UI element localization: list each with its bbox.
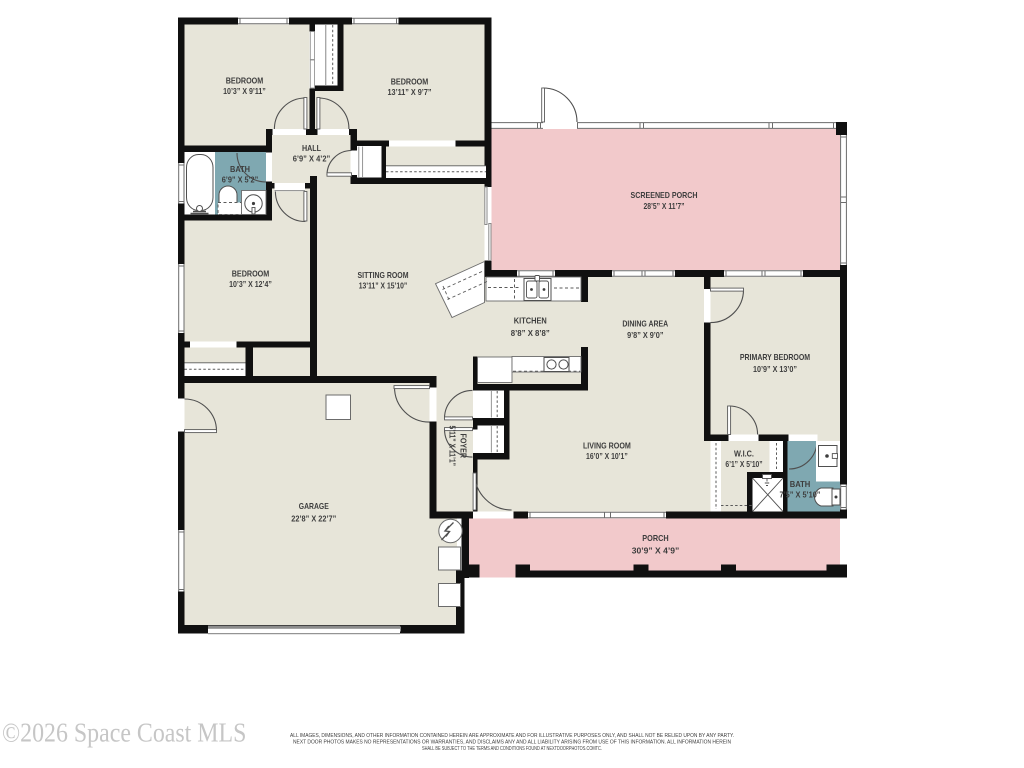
svg-text:BEDROOM: BEDROOM: [226, 75, 264, 85]
svg-text:SHALL BE SUBJECT TO THE TERMS: SHALL BE SUBJECT TO THE TERMS AND CONDIT…: [422, 746, 602, 752]
svg-text:7’5” X 5’10”: 7’5” X 5’10”: [780, 490, 821, 500]
svg-text:28’5” X 11’7”: 28’5” X 11’7”: [644, 201, 685, 211]
svg-text:HALL: HALL: [302, 143, 321, 153]
svg-text:22’8” X 22’7”: 22’8” X 22’7”: [291, 514, 336, 524]
svg-text:8’8” X 8’8”: 8’8” X 8’8”: [511, 328, 550, 338]
svg-text:16’0” X 10’1”: 16’0” X 10’1”: [586, 451, 628, 461]
svg-text:13’11” X 15’10”: 13’11” X 15’10”: [359, 280, 408, 290]
svg-text:6’1” X 5’10”: 6’1” X 5’10”: [725, 459, 762, 469]
svg-text:10’3” X 12’4”: 10’3” X 12’4”: [229, 279, 272, 289]
svg-text:GARAGE: GARAGE: [299, 501, 329, 511]
svg-text:10’3” X 9’11”: 10’3” X 9’11”: [223, 86, 266, 96]
svg-text:BATH: BATH: [790, 479, 811, 489]
svg-text:FOYER: FOYER: [459, 434, 469, 459]
svg-text:LIVING ROOM: LIVING ROOM: [583, 441, 631, 451]
svg-text:BEDROOM: BEDROOM: [232, 269, 270, 279]
svg-text:13’11” X 9’7”: 13’11” X 9’7”: [388, 87, 432, 97]
svg-text:BATH: BATH: [230, 164, 250, 174]
svg-text:30’9” X 4’9”: 30’9” X 4’9”: [632, 545, 680, 555]
svg-text:6’9” X 4’2”: 6’9” X 4’2”: [293, 153, 331, 163]
svg-text:9’8” X 9’0”: 9’8” X 9’0”: [627, 330, 663, 340]
svg-text:PRIMARY BEDROOM: PRIMARY BEDROOM: [740, 352, 810, 362]
svg-text:5’11” X 11’1”: 5’11” X 11’1”: [448, 426, 458, 467]
svg-text:BEDROOM: BEDROOM: [391, 77, 429, 87]
svg-text:SITTING ROOM: SITTING ROOM: [358, 270, 409, 280]
svg-text:NEXT DOOR PHOTOS MAKES NO REPR: NEXT DOOR PHOTOS MAKES NO REPRESENTATION…: [293, 740, 731, 746]
svg-text:©2026 Space Coast MLS: ©2026 Space Coast MLS: [2, 717, 246, 748]
svg-text:10’9” X 13’0”: 10’9” X 13’0”: [753, 364, 797, 374]
svg-text:6’9” X 5’2”: 6’9” X 5’2”: [222, 175, 259, 185]
svg-text:PORCH: PORCH: [642, 533, 668, 543]
svg-text:ALL IMAGES, DIMENSIONS, AND OT: ALL IMAGES, DIMENSIONS, AND OTHER INFORM…: [290, 733, 734, 739]
svg-text:KITCHEN: KITCHEN: [514, 315, 547, 325]
svg-text:SCREENED PORCH: SCREENED PORCH: [631, 190, 698, 200]
svg-text:DINING AREA: DINING AREA: [622, 318, 668, 328]
svg-text:W.I.C.: W.I.C.: [734, 448, 754, 458]
